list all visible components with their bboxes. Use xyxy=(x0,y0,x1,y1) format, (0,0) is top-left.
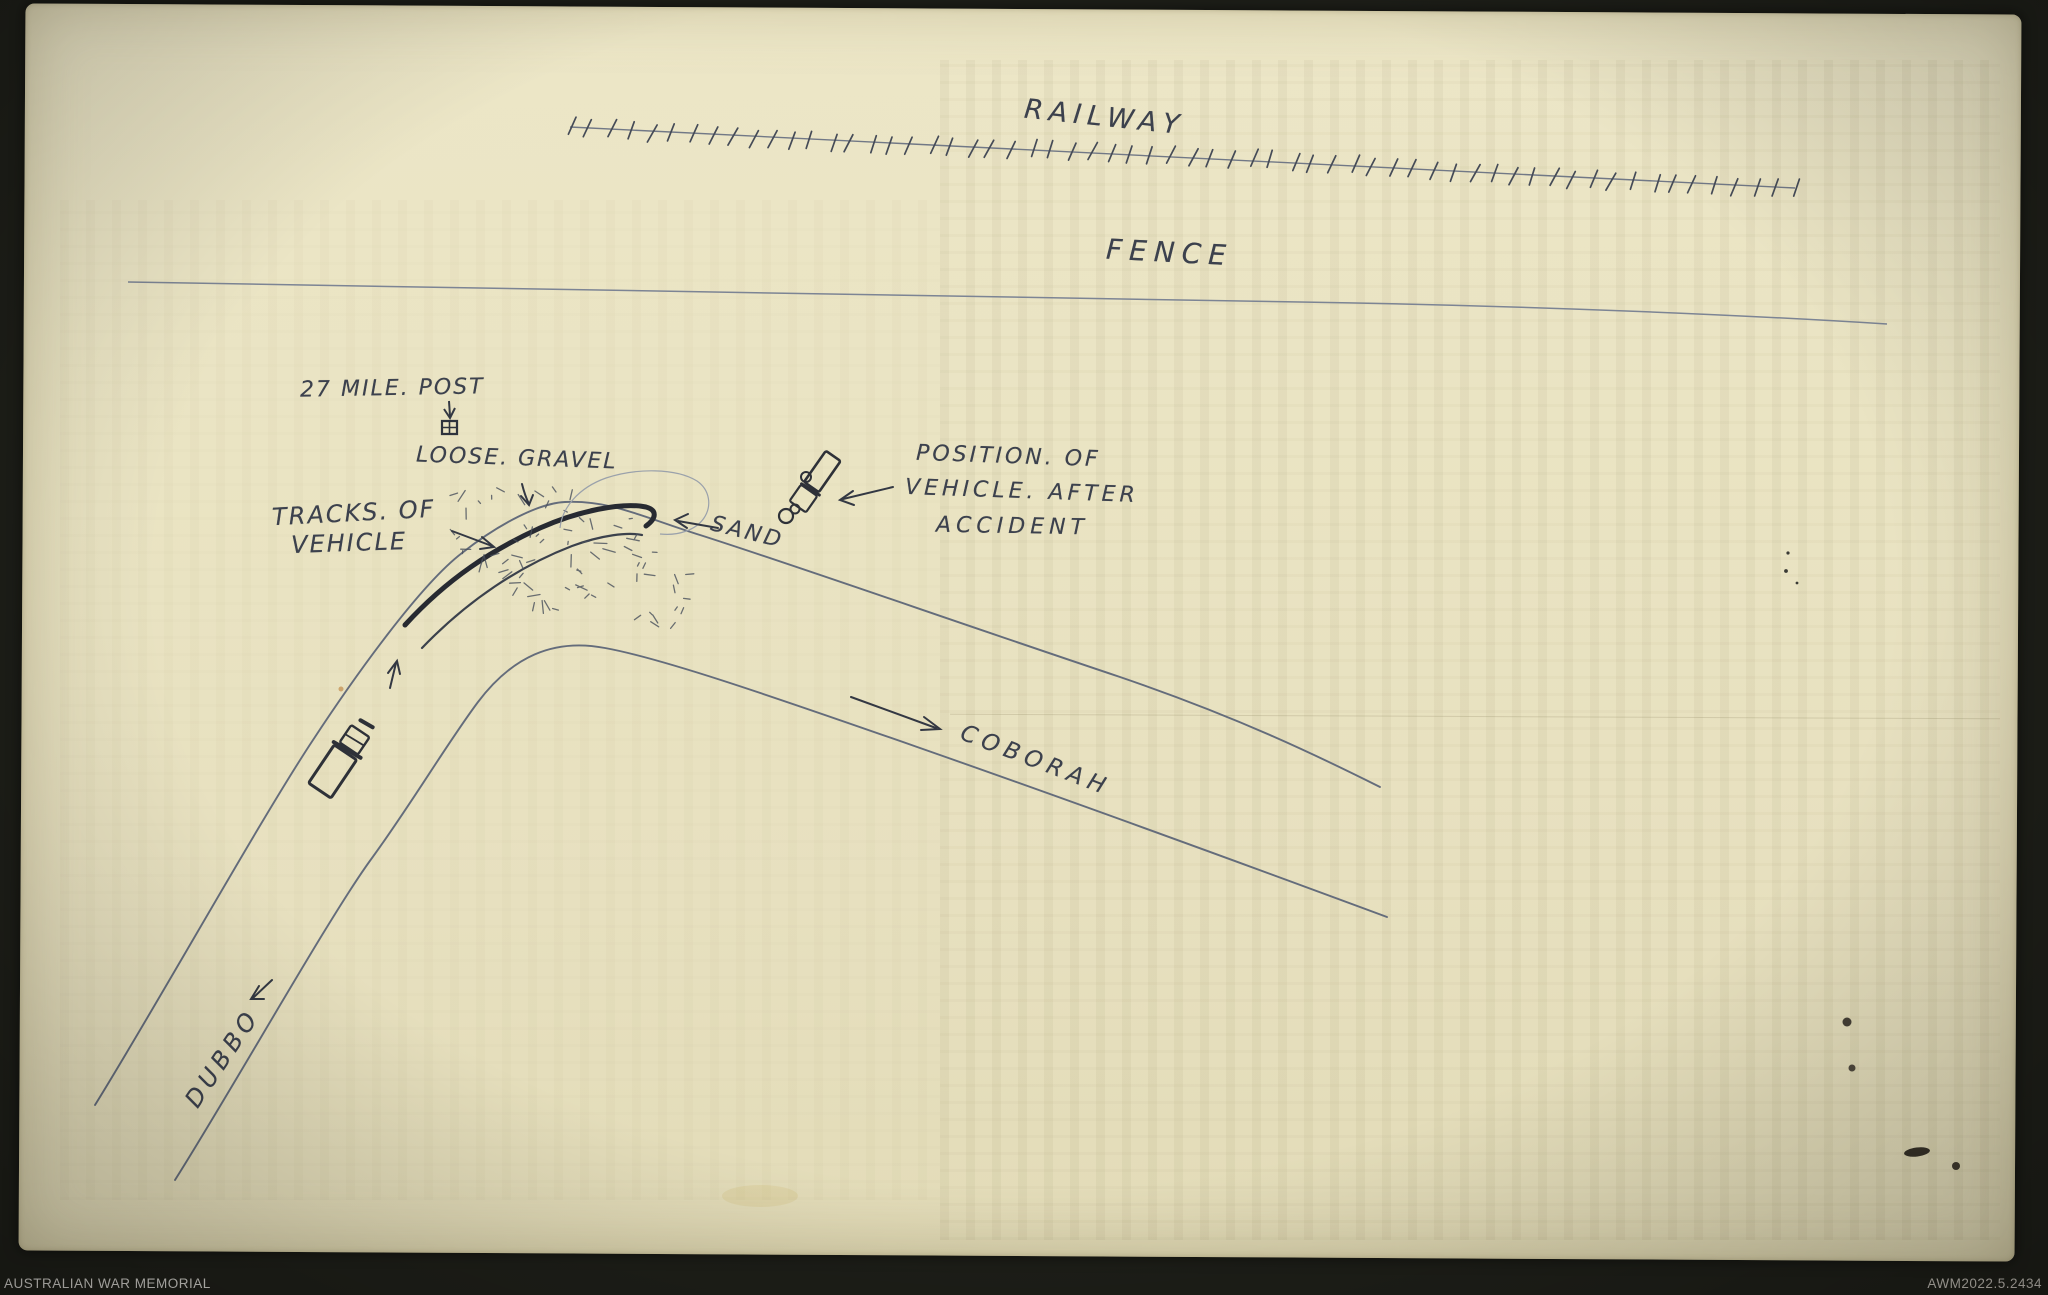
paper-blemishes xyxy=(339,551,1961,1207)
travel-direction-arrow-icon xyxy=(388,661,400,688)
tracks-of-vehicle-label-line2: VEHICLE xyxy=(291,527,408,559)
catalog-number-caption: AWM2022.5.2434 xyxy=(1927,1276,2042,1291)
fence-label: FENCE xyxy=(1105,233,1234,273)
vehicle-position-arrow-icon xyxy=(840,487,893,505)
fence-line xyxy=(128,282,1887,324)
mile-post-label: 27 MILE. POST xyxy=(300,374,485,402)
vehicle-after-accident-icon xyxy=(779,450,842,523)
vehicle-position-label-line3: ACCIDENT xyxy=(936,513,1089,541)
scanned-document-photo: RAILWAY FENCE 27 MILE. POST LOOSE. GRAVE… xyxy=(0,0,2048,1295)
institution-caption: AUSTRALIAN WAR MEMORIAL xyxy=(4,1276,211,1291)
dubbo-direction-arrow-icon xyxy=(251,980,272,999)
coborah-direction-arrow-icon xyxy=(851,697,940,730)
mile-post-marker-icon xyxy=(442,401,457,434)
vehicle-on-road-icon xyxy=(307,714,379,799)
road-edges xyxy=(95,502,1387,1180)
sketch-linework xyxy=(0,0,2048,1295)
